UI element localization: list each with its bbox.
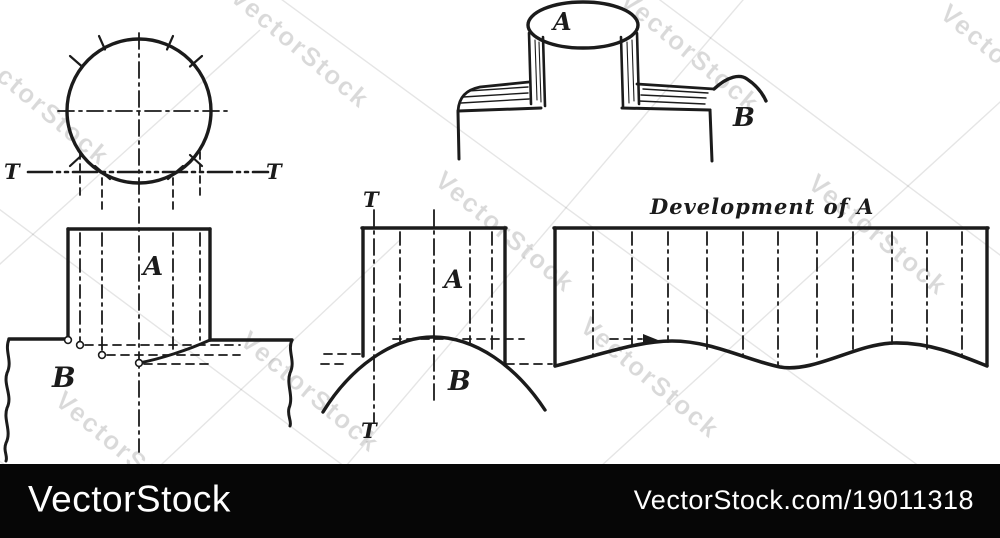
vectorstock-logo: VectorStock [28, 478, 231, 520]
section-label-t-left: T [4, 159, 20, 184]
development-view [554, 228, 988, 368]
pictorial-view [458, 2, 766, 161]
front-view-label-b: B [52, 361, 76, 394]
watermark-footer-bar: VectorStock VectorStock.com/19011318 [0, 464, 1000, 538]
pictorial-label-b: B [733, 103, 755, 133]
side-view [321, 210, 552, 422]
section-label-t-right: T [266, 159, 282, 184]
side-view-label-a: A [444, 265, 463, 294]
side-view-label-t-bottom: T [361, 418, 377, 443]
pictorial-label-a: A [553, 7, 572, 36]
front-view-label-a: A [143, 252, 163, 282]
side-view-label-t-top: T [363, 187, 379, 212]
development-title: Development of A [650, 194, 874, 219]
side-view-label-b: B [448, 366, 471, 397]
technical-drawing [0, 0, 1000, 467]
stock-image-preview: VectorStock VectorStock VectorStock Vect… [0, 0, 1000, 538]
vectorstock-url: VectorStock.com/19011318 [634, 485, 974, 516]
